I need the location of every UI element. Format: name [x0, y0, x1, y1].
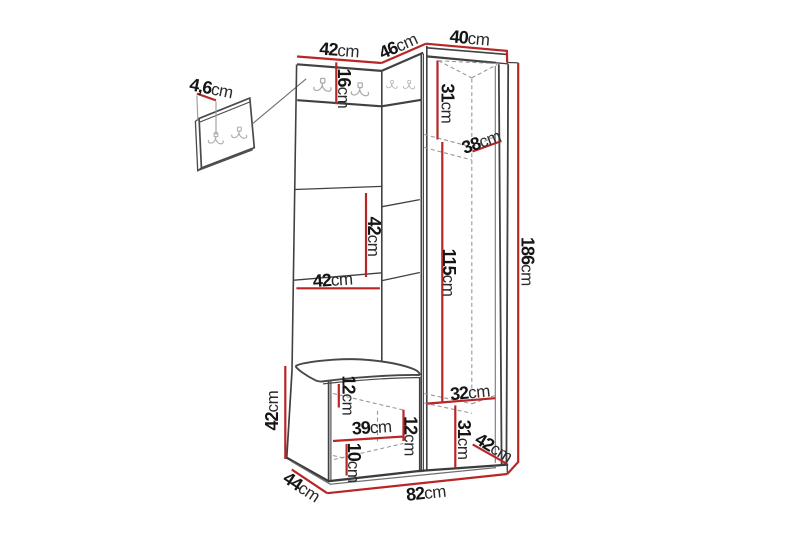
svg-text:31cm: 31cm	[438, 84, 458, 124]
svg-text:186cm: 186cm	[518, 237, 538, 286]
svg-text:40cm: 40cm	[449, 26, 491, 49]
svg-text:115cm: 115cm	[439, 249, 459, 297]
svg-text:12cm: 12cm	[339, 375, 359, 415]
svg-text:10cm: 10cm	[344, 443, 364, 483]
svg-text:42cm: 42cm	[262, 390, 282, 430]
svg-text:16cm: 16cm	[334, 69, 354, 109]
svg-text:39cm: 39cm	[351, 416, 392, 439]
svg-text:42cm: 42cm	[364, 217, 384, 257]
svg-text:31cm: 31cm	[454, 420, 474, 460]
svg-text:42cm: 42cm	[312, 268, 353, 291]
svg-text:12cm: 12cm	[400, 416, 420, 456]
svg-text:42cm: 42cm	[319, 39, 360, 62]
